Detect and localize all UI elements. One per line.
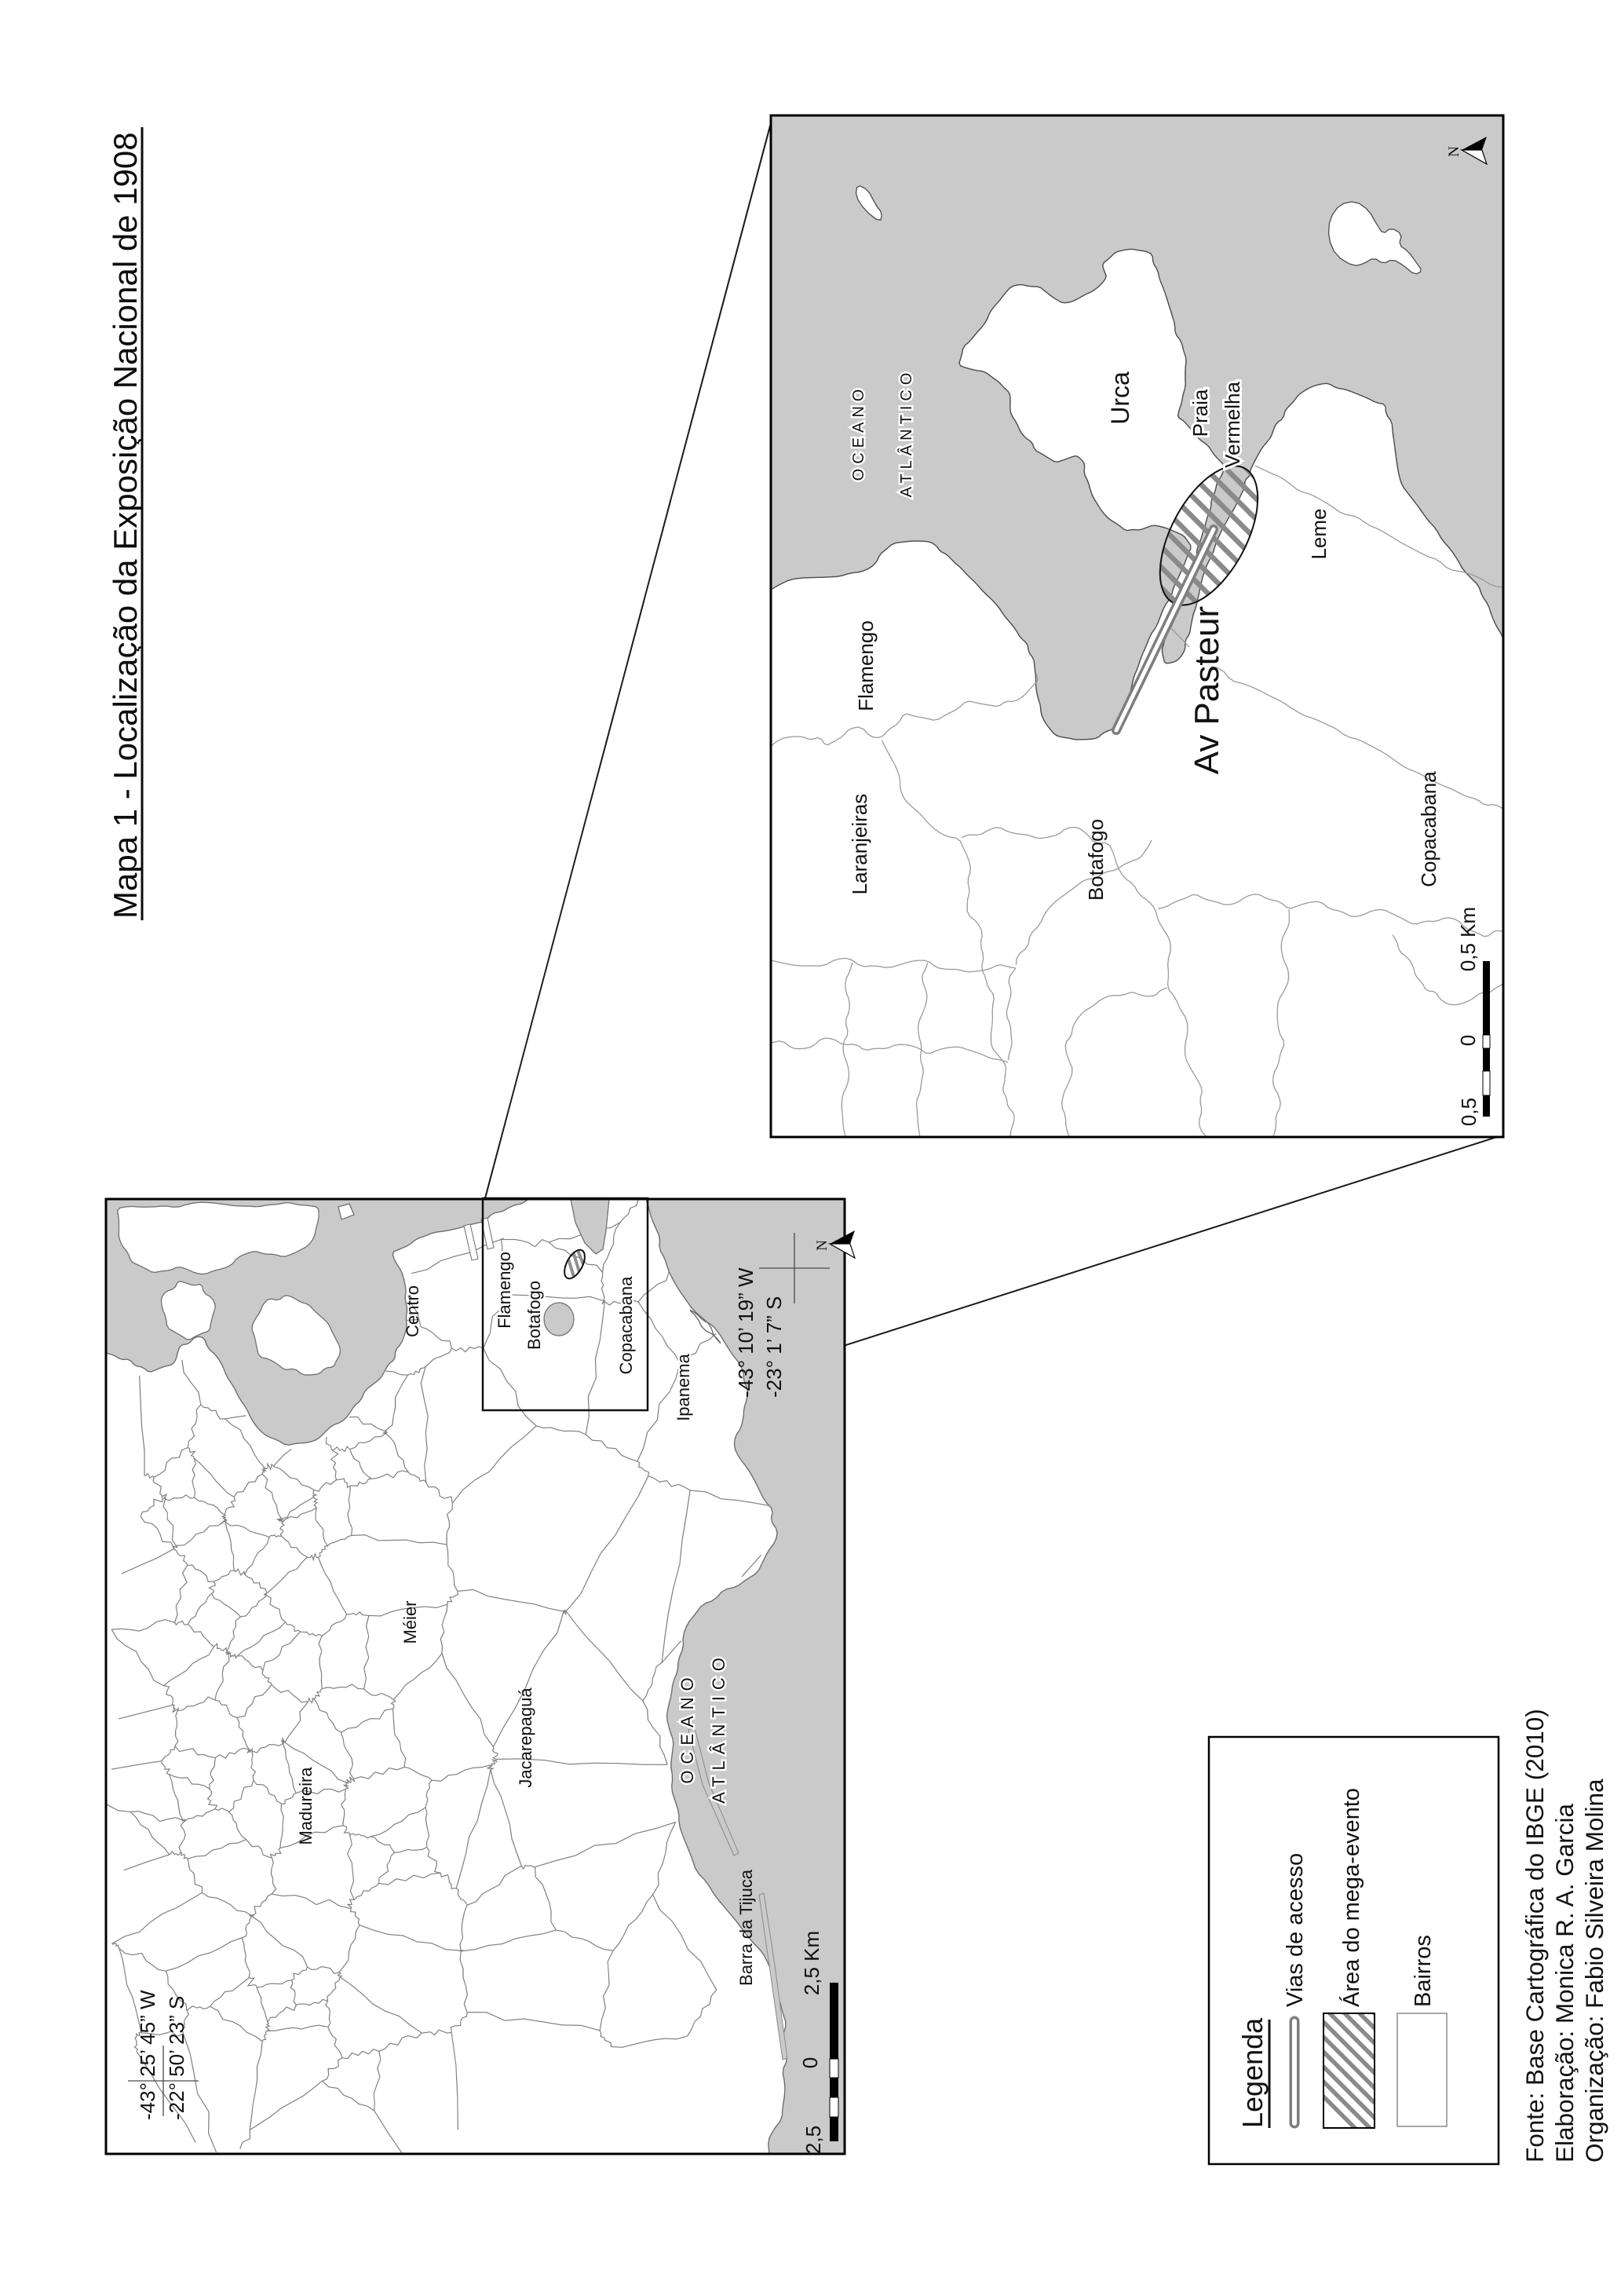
- svg-text:OCEANO: OCEANO: [850, 385, 867, 481]
- svg-text:N: N: [1446, 146, 1462, 157]
- svg-text:-43° 25’ 45” W: -43° 25’ 45” W: [136, 1990, 159, 2120]
- svg-text:0,5 Km: 0,5 Km: [1456, 907, 1480, 971]
- svg-text:Jacarepaguá: Jacarepaguá: [516, 1687, 535, 1788]
- svg-text:0: 0: [1456, 1035, 1480, 1046]
- svg-text:Botafogo: Botafogo: [1084, 819, 1108, 901]
- svg-text:Madureira: Madureira: [296, 1767, 316, 1845]
- svg-text:Flamengo: Flamengo: [854, 620, 878, 711]
- svg-text:2,5: 2,5: [801, 2126, 825, 2154]
- svg-text:Elaboração: Monica R. A. Garci: Elaboração: Monica R. A. Garcia: [1550, 1804, 1579, 2163]
- svg-text:Flamengo: Flamengo: [495, 1252, 514, 1329]
- svg-text:Mapa 1 - Localização da Exposi: Mapa 1 - Localização da Exposição Nacion…: [107, 132, 144, 919]
- svg-text:Legenda: Legenda: [1236, 2017, 1269, 2128]
- svg-text:0: 0: [798, 2057, 822, 2068]
- svg-text:Área do mega-evento: Área do mega-evento: [1338, 1788, 1364, 2007]
- svg-text:Fonte: Base Cartográfica do IB: Fonte: Base Cartográfica do IBGE (2010): [1521, 1709, 1549, 2163]
- svg-text:Urca: Urca: [1106, 371, 1134, 425]
- svg-text:-23° 1’ 7” S: -23° 1’ 7” S: [762, 1296, 786, 1398]
- svg-text:Laranjeiras: Laranjeiras: [848, 794, 871, 895]
- svg-text:-22° 50’ 23” S: -22° 50’ 23” S: [165, 1996, 188, 2120]
- svg-text:Organização: Fabio Silveira Mo: Organização: Fabio Silveira Molina: [1580, 1779, 1608, 2163]
- svg-text:Vias de acesso: Vias de acesso: [1283, 1853, 1308, 2007]
- svg-text:Praia: Praia: [1188, 389, 1212, 437]
- svg-text:N: N: [814, 1240, 831, 1251]
- svg-text:0,5: 0,5: [1457, 1098, 1480, 1126]
- svg-text:Vermelha: Vermelha: [1221, 382, 1244, 468]
- svg-text:ATLÂNTICO: ATLÂNTICO: [709, 1651, 728, 1804]
- svg-text:Ipanema: Ipanema: [674, 1353, 693, 1420]
- svg-text:Copacabana: Copacabana: [1417, 771, 1440, 887]
- svg-text:Centro: Centro: [403, 1285, 422, 1337]
- svg-text:Barra da Tijuca: Barra da Tijuca: [736, 1869, 756, 1986]
- svg-text:-43° 10’ 19” W: -43° 10’ 19” W: [734, 1267, 758, 1398]
- svg-text:Bairros: Bairros: [1411, 1935, 1436, 2007]
- svg-text:2,5 Km: 2,5 Km: [800, 1931, 823, 1995]
- svg-text:Méier: Méier: [400, 1600, 420, 1643]
- svg-text:Botafogo: Botafogo: [524, 1281, 544, 1350]
- svg-text:Copacabana: Copacabana: [616, 1276, 636, 1375]
- svg-text:OCEANO: OCEANO: [677, 1671, 697, 1783]
- svg-text:Leme: Leme: [1307, 508, 1331, 559]
- svg-text:Av Pasteur: Av Pasteur: [1188, 606, 1226, 774]
- svg-text:ATLÂNTICO: ATLÂNTICO: [897, 368, 915, 498]
